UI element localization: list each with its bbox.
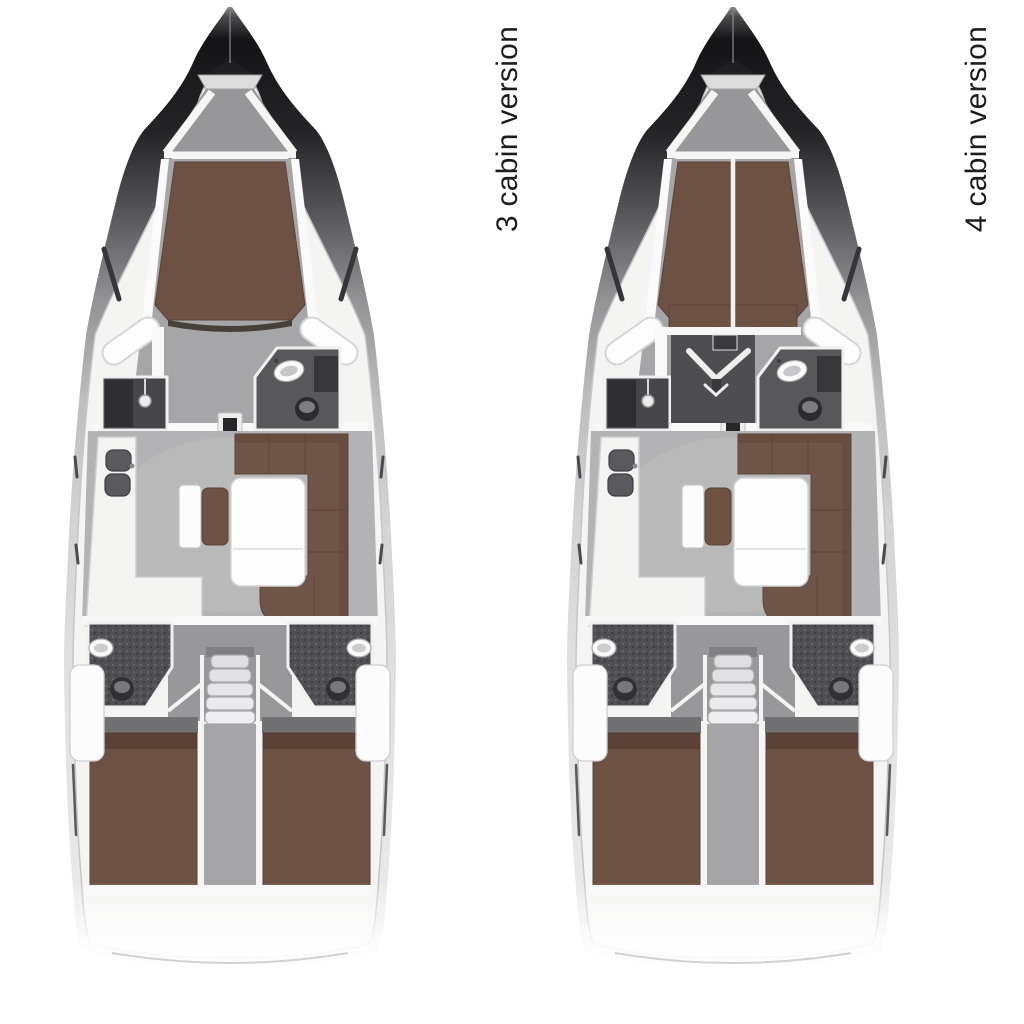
plan-label-4-cabin: 4 cabin version — [960, 26, 994, 232]
page: 3 cabin version 4 cabin version — [0, 0, 1024, 1024]
boat-svg-3-cabin — [62, 5, 398, 990]
fore-bulkhead — [665, 327, 801, 335]
plan-label-3-cabin: 3 cabin version — [491, 26, 525, 232]
vestibule-wardrobe — [713, 335, 737, 350]
boat-svg-4-cabin — [565, 5, 901, 990]
